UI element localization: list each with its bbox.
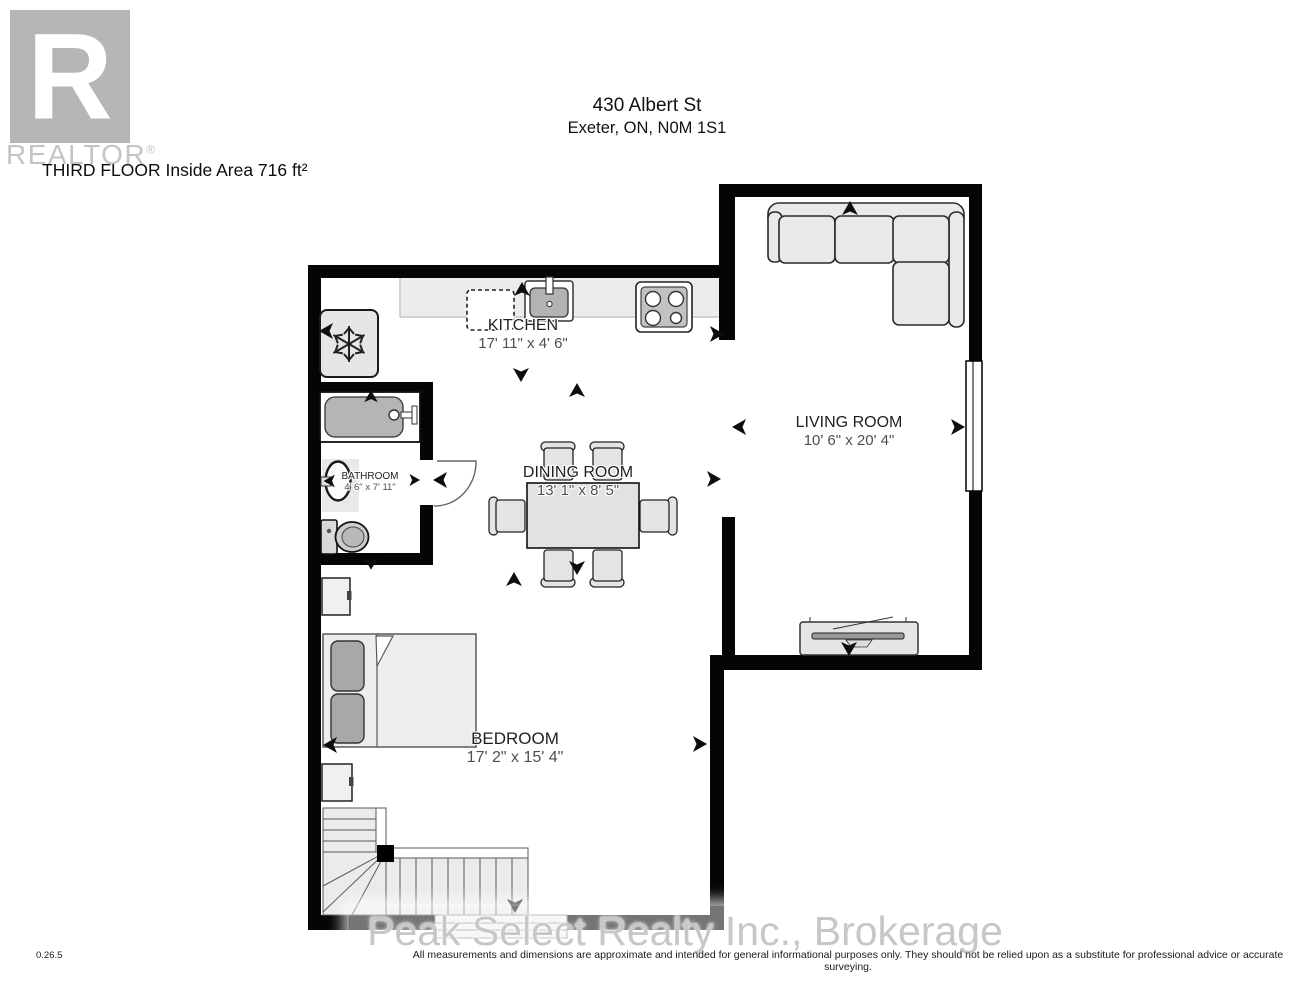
floor-title: THIRD FLOOR Inside Area 716 ft² — [42, 160, 308, 181]
room-label-bedroom: BEDROOM 17' 2" x 15' 4" — [467, 729, 564, 767]
room-label-dining: DINING ROOM 13' 1" x 8' 5" — [523, 464, 633, 499]
room-label-kitchen: KITCHEN 17' 11" x 4' 6" — [478, 317, 568, 352]
realtor-logo: R — [10, 10, 130, 143]
room-label-living: LIVING ROOM 10' 6" x 20' 4" — [796, 414, 903, 449]
bed-icon — [323, 634, 476, 747]
fridge-icon — [320, 310, 378, 377]
sink-icon — [525, 277, 573, 321]
registered-trademark-icon: ® — [146, 143, 155, 157]
tv-console-icon — [800, 617, 918, 655]
stove-icon — [636, 282, 692, 332]
version-label: 0.26.5 — [36, 950, 62, 961]
window — [966, 361, 982, 491]
realtor-logo-letter: R — [27, 15, 112, 138]
disclaimer-text: All measurements and dimensions are appr… — [403, 949, 1293, 973]
toilet-icon — [321, 520, 369, 554]
room-label-bathroom: BATHROOM 4' 6" x 7' 11" — [341, 471, 398, 493]
sofa-icon — [768, 203, 964, 327]
floor-plan-svg — [0, 0, 1294, 1000]
